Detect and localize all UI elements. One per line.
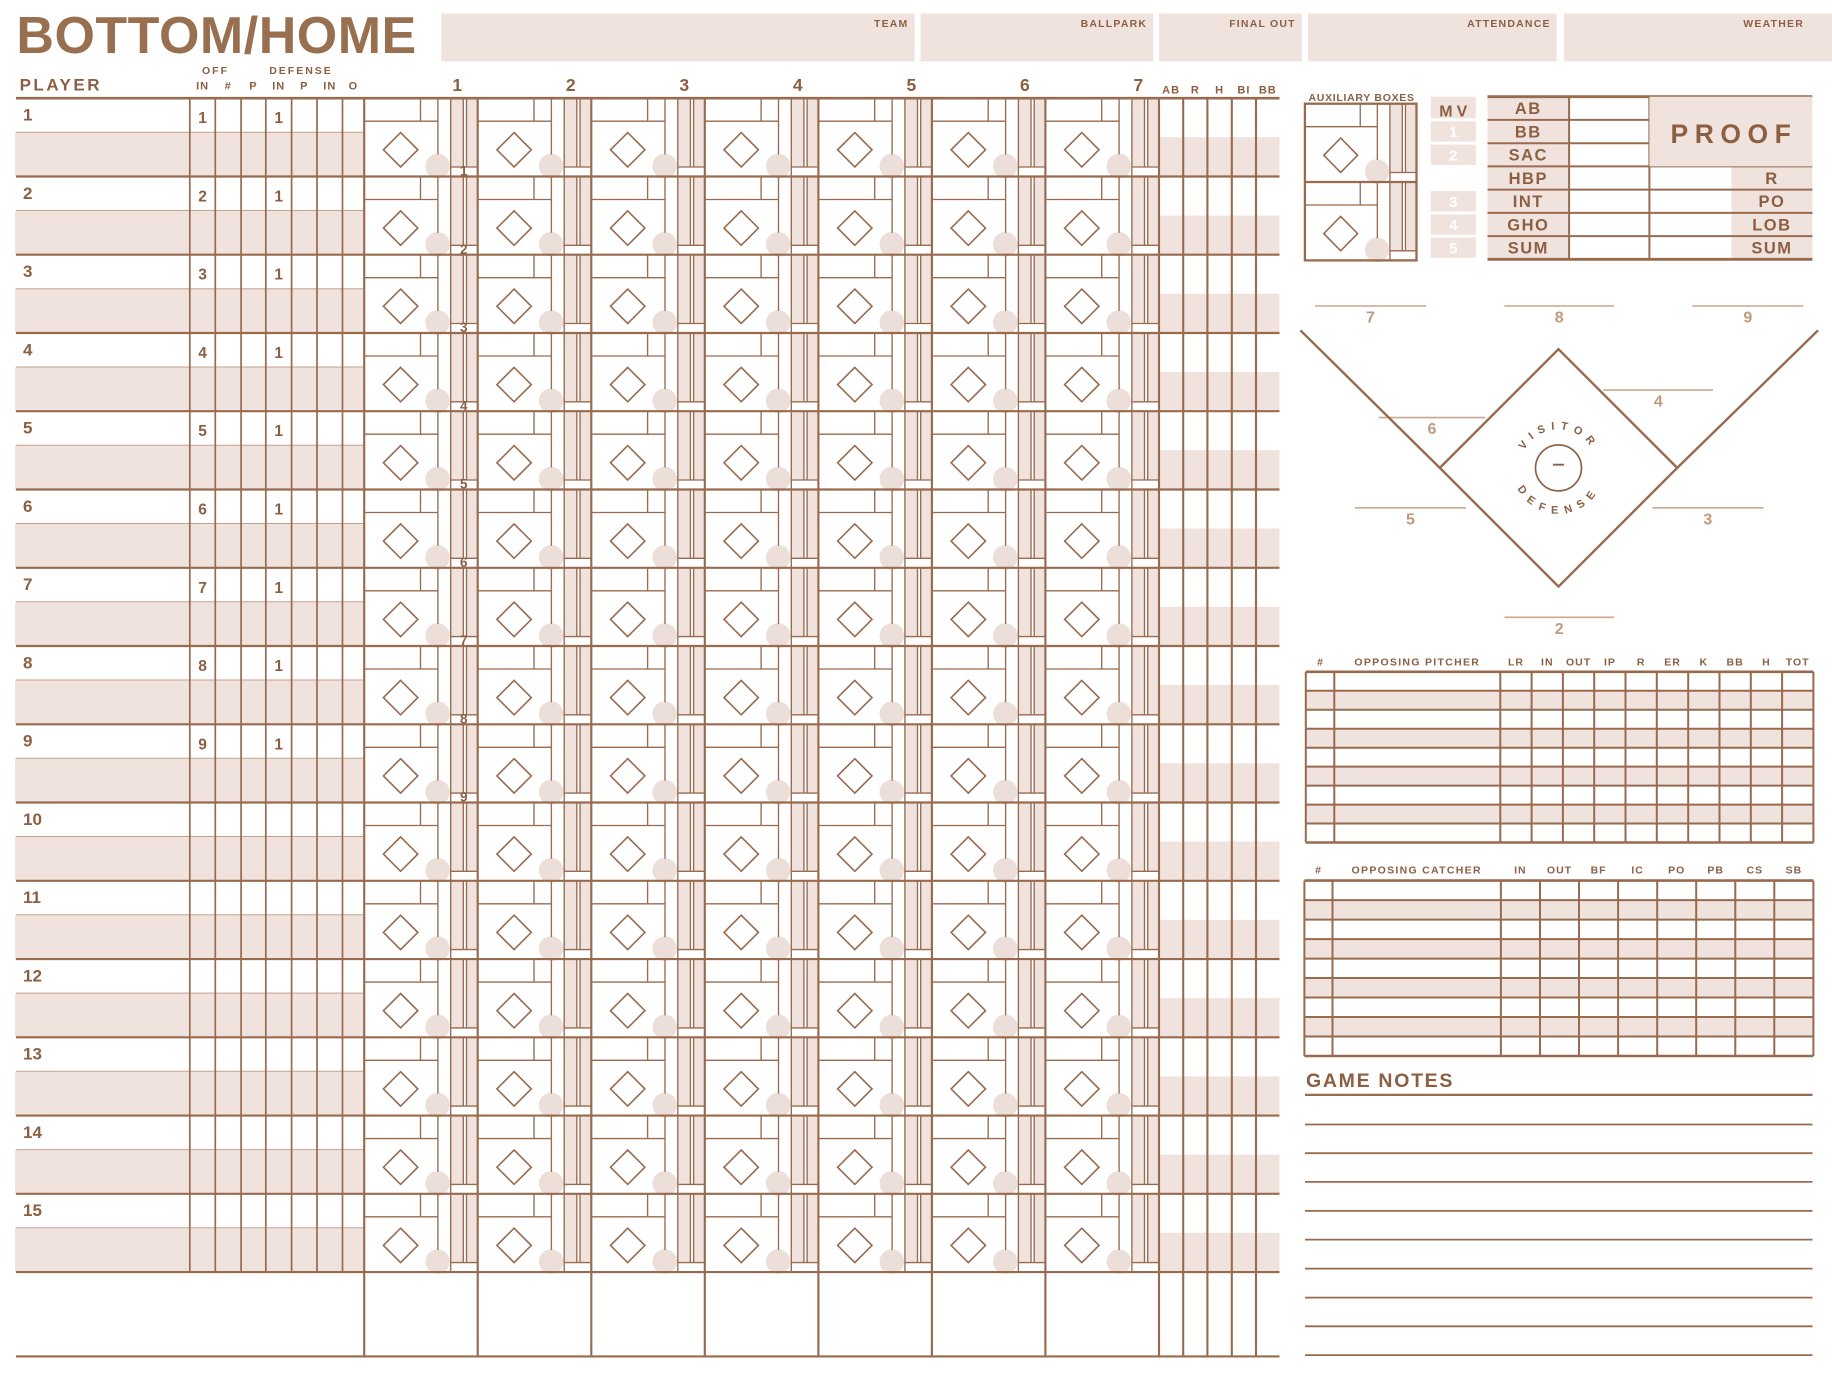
svg-text:3: 3	[23, 262, 32, 281]
svg-text:SB: SB	[1786, 865, 1803, 877]
svg-text:6: 6	[1020, 75, 1030, 95]
svg-text:DEFENSE: DEFENSE	[1515, 484, 1603, 517]
svg-text:TOT: TOT	[1786, 657, 1810, 669]
svg-text:2: 2	[198, 189, 207, 206]
svg-text:1: 1	[452, 75, 462, 95]
svg-text:1: 1	[23, 106, 32, 125]
svg-text:PB: PB	[1707, 865, 1724, 877]
svg-text:9: 9	[23, 732, 32, 751]
svg-text:IP: IP	[1604, 657, 1616, 669]
svg-text:P: P	[300, 81, 308, 93]
svg-text:4: 4	[1449, 217, 1458, 234]
svg-text:7: 7	[1366, 310, 1375, 327]
svg-text:2: 2	[23, 184, 32, 203]
svg-text:P: P	[249, 81, 257, 93]
svg-text:5: 5	[907, 75, 917, 95]
svg-text:IN: IN	[196, 81, 209, 93]
svg-text:10: 10	[23, 810, 42, 829]
svg-text:AB: AB	[1162, 85, 1180, 97]
svg-text:R: R	[1765, 170, 1778, 188]
svg-text:BALLPARK: BALLPARK	[1081, 18, 1148, 30]
svg-text:R: R	[1637, 657, 1646, 669]
svg-text:8: 8	[1555, 310, 1564, 327]
svg-text:4: 4	[793, 75, 803, 95]
svg-text:PO: PO	[1758, 193, 1785, 211]
svg-text:1: 1	[274, 580, 283, 597]
svg-text:BF: BF	[1591, 865, 1607, 877]
svg-text:TEAM: TEAM	[874, 18, 909, 30]
svg-text:WEATHER: WEATHER	[1743, 18, 1804, 30]
svg-text:12: 12	[23, 966, 42, 985]
svg-text:9: 9	[198, 736, 207, 753]
svg-text:5: 5	[1406, 511, 1415, 528]
svg-text:PLAYER: PLAYER	[20, 76, 102, 95]
svg-text:H: H	[1762, 657, 1771, 669]
svg-text:7: 7	[23, 575, 32, 594]
svg-text:K: K	[1700, 657, 1709, 669]
svg-text:5: 5	[198, 423, 207, 440]
svg-text:IN: IN	[1514, 865, 1527, 877]
svg-text:6: 6	[1428, 421, 1437, 438]
svg-text:BI: BI	[1237, 85, 1250, 97]
svg-text:HBP: HBP	[1509, 170, 1548, 188]
svg-text:4: 4	[1654, 394, 1663, 411]
svg-text:BB: BB	[1515, 123, 1542, 141]
svg-text:MV: MV	[1439, 104, 1471, 121]
svg-text:3: 3	[679, 75, 689, 95]
svg-text:5: 5	[23, 419, 32, 438]
svg-text:1: 1	[274, 423, 283, 440]
svg-text:1: 1	[1449, 124, 1457, 141]
svg-text:14: 14	[23, 1123, 42, 1142]
svg-text:CS: CS	[1747, 865, 1764, 877]
svg-text:15: 15	[23, 1201, 42, 1220]
svg-text:BOTTOM/HOME: BOTTOM/HOME	[16, 7, 416, 65]
svg-text:9: 9	[1743, 310, 1752, 327]
svg-text:5: 5	[1449, 240, 1457, 257]
svg-text:8: 8	[198, 658, 207, 675]
svg-text:OFF: OFF	[202, 65, 229, 77]
svg-text:DEFENSE: DEFENSE	[269, 65, 333, 77]
svg-text:SUM: SUM	[1508, 240, 1549, 258]
svg-text:IN: IN	[272, 81, 285, 93]
svg-text:7: 7	[1134, 75, 1144, 95]
svg-text:AB: AB	[1515, 100, 1542, 118]
svg-text:1: 1	[274, 345, 283, 362]
svg-text:2: 2	[566, 75, 576, 95]
svg-text:6: 6	[23, 497, 32, 516]
svg-text:1: 1	[274, 736, 283, 753]
svg-text:ATTENDANCE: ATTENDANCE	[1467, 18, 1551, 30]
svg-text:H: H	[1215, 85, 1224, 97]
svg-text:1: 1	[274, 502, 283, 519]
svg-text:GAME NOTES: GAME NOTES	[1306, 1070, 1454, 1092]
svg-text:3: 3	[1449, 194, 1457, 211]
svg-text:4: 4	[23, 340, 33, 359]
svg-text:BB: BB	[1259, 85, 1277, 97]
svg-text:OUT: OUT	[1566, 657, 1591, 669]
svg-text:OUT: OUT	[1547, 865, 1572, 877]
svg-text:OPPOSING CATCHER: OPPOSING CATCHER	[1352, 865, 1482, 877]
svg-text:OPPOSING PITCHER: OPPOSING PITCHER	[1354, 657, 1480, 669]
svg-text:LR: LR	[1508, 657, 1524, 669]
svg-text:4: 4	[198, 345, 207, 362]
svg-text:IN: IN	[323, 81, 336, 93]
svg-text:1: 1	[274, 189, 283, 206]
svg-text:2: 2	[1555, 621, 1564, 638]
svg-text:LOB: LOB	[1752, 216, 1791, 234]
svg-text:VISITOR: VISITOR	[1517, 420, 1601, 452]
svg-text:1: 1	[274, 658, 283, 675]
svg-text:#: #	[1315, 865, 1321, 877]
svg-text:PROOF: PROOF	[1671, 119, 1798, 149]
svg-text:3: 3	[1703, 511, 1712, 528]
svg-text:2: 2	[1449, 148, 1457, 165]
svg-text:11: 11	[23, 888, 41, 907]
svg-text:O: O	[349, 81, 359, 93]
svg-text:13: 13	[23, 1045, 42, 1064]
svg-text:FINAL OUT: FINAL OUT	[1229, 18, 1296, 30]
svg-text:AUXILIARY BOXES: AUXILIARY BOXES	[1309, 92, 1415, 104]
svg-text:GHO: GHO	[1507, 216, 1549, 234]
svg-text:BB: BB	[1727, 657, 1744, 669]
svg-text:1: 1	[198, 110, 207, 127]
svg-text:ER: ER	[1664, 657, 1681, 669]
svg-text:8: 8	[23, 653, 32, 672]
svg-text:R: R	[1191, 85, 1200, 97]
svg-text:6: 6	[198, 502, 207, 519]
svg-text:1: 1	[274, 110, 283, 127]
svg-text:#: #	[1317, 657, 1323, 669]
svg-text:1: 1	[274, 267, 283, 284]
svg-text:SUM: SUM	[1751, 240, 1792, 258]
svg-text:INT: INT	[1513, 193, 1544, 211]
svg-text:#: #	[225, 81, 232, 93]
svg-text:IC: IC	[1631, 865, 1644, 877]
svg-text:SAC: SAC	[1509, 147, 1548, 165]
svg-text:3: 3	[198, 267, 207, 284]
svg-text:PO: PO	[1668, 865, 1685, 877]
svg-text:7: 7	[198, 580, 207, 597]
svg-text:IN: IN	[1541, 657, 1554, 669]
